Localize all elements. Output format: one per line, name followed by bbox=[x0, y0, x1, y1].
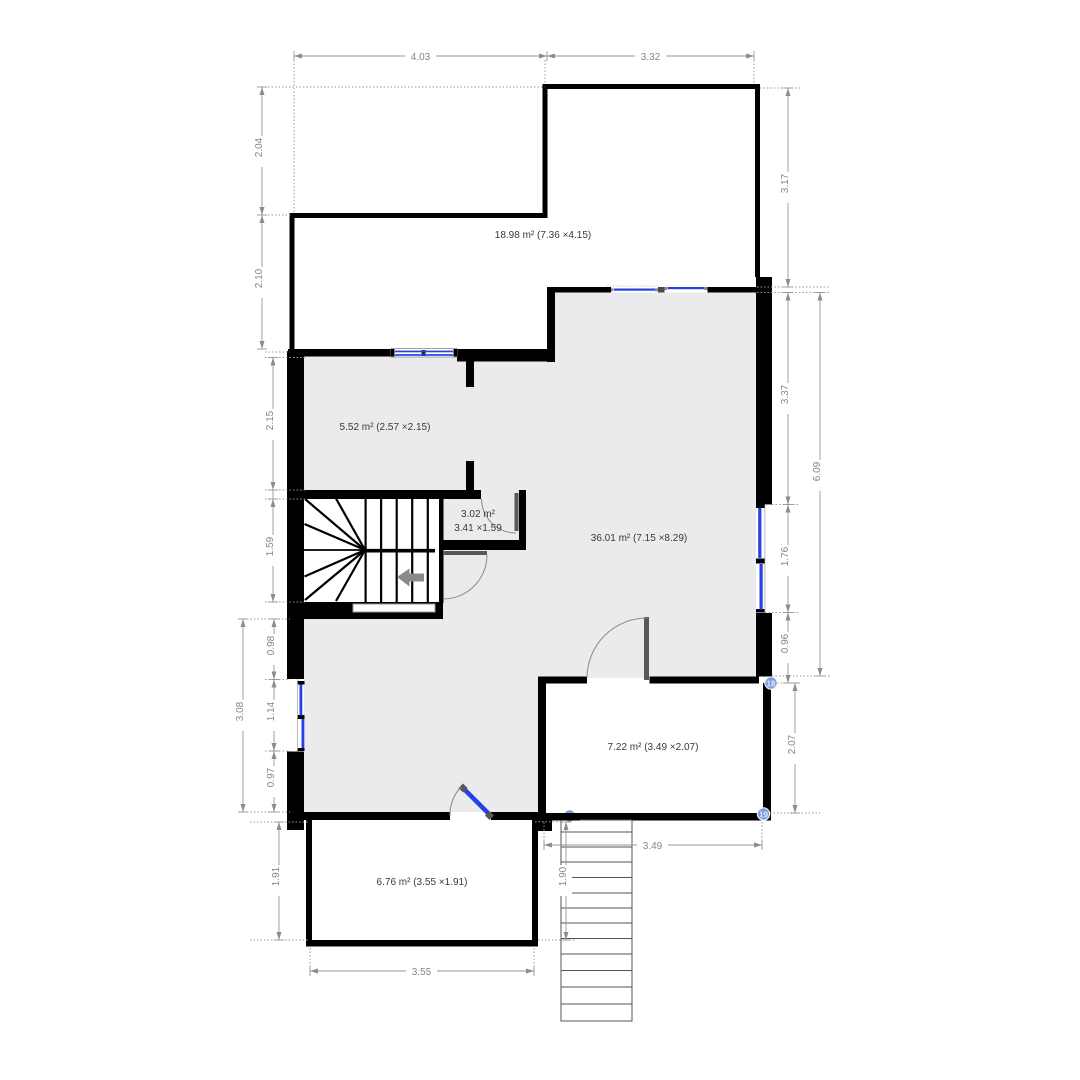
svg-text:36.01 m² (7.15 ×8.29): 36.01 m² (7.15 ×8.29) bbox=[591, 533, 687, 544]
svg-text:0.98: 0.98 bbox=[266, 635, 277, 655]
svg-text:18.98 m² (7.36 ×4.15): 18.98 m² (7.36 ×4.15) bbox=[495, 230, 591, 241]
svg-text:1.76: 1.76 bbox=[780, 546, 791, 566]
svg-text:4.03: 4.03 bbox=[411, 52, 431, 63]
svg-text:18: 18 bbox=[767, 680, 776, 689]
svg-text:3.49: 3.49 bbox=[643, 841, 663, 852]
svg-text:1.59: 1.59 bbox=[265, 536, 276, 556]
svg-text:2.10: 2.10 bbox=[254, 268, 265, 288]
svg-text:7.22 m² (3.49 ×2.07): 7.22 m² (3.49 ×2.07) bbox=[608, 742, 699, 753]
svg-text:1.14: 1.14 bbox=[266, 701, 277, 721]
svg-text:2.07: 2.07 bbox=[787, 734, 798, 754]
svg-text:0.97: 0.97 bbox=[266, 767, 277, 787]
svg-text:2.15: 2.15 bbox=[265, 410, 276, 430]
svg-text:2.04: 2.04 bbox=[254, 137, 265, 157]
svg-text:1.91: 1.91 bbox=[271, 866, 282, 886]
svg-text:6.76 m² (3.55 ×1.91): 6.76 m² (3.55 ×1.91) bbox=[377, 877, 468, 888]
svg-text:3.32: 3.32 bbox=[641, 52, 661, 63]
svg-text:3.17: 3.17 bbox=[780, 173, 791, 193]
svg-text:19: 19 bbox=[759, 811, 768, 820]
svg-text:0.96: 0.96 bbox=[780, 633, 791, 653]
svg-text:3.08: 3.08 bbox=[235, 701, 246, 721]
svg-text:3.41 ×1.59: 3.41 ×1.59 bbox=[454, 523, 502, 534]
svg-text:3.37: 3.37 bbox=[780, 384, 791, 404]
svg-text:3.55: 3.55 bbox=[412, 967, 432, 978]
svg-text:6.09: 6.09 bbox=[812, 461, 823, 481]
svg-text:3.02 m²: 3.02 m² bbox=[461, 509, 496, 520]
svg-text:5.52 m² (2.57 ×2.15): 5.52 m² (2.57 ×2.15) bbox=[340, 422, 431, 433]
svg-text:1.90: 1.90 bbox=[558, 866, 569, 886]
